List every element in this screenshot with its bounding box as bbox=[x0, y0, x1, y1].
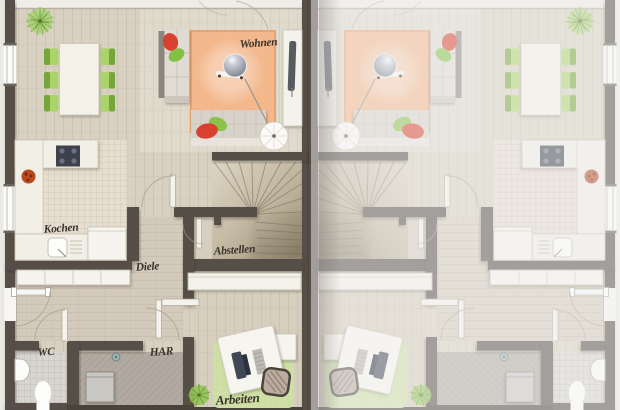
svg-text:Kochen: Kochen bbox=[42, 222, 78, 236]
svg-text:Arbeiten: Arbeiten bbox=[214, 390, 260, 408]
svg-text:Diele: Diele bbox=[134, 260, 159, 274]
svg-text:WC: WC bbox=[37, 346, 55, 359]
svg-text:HAR: HAR bbox=[148, 345, 174, 359]
